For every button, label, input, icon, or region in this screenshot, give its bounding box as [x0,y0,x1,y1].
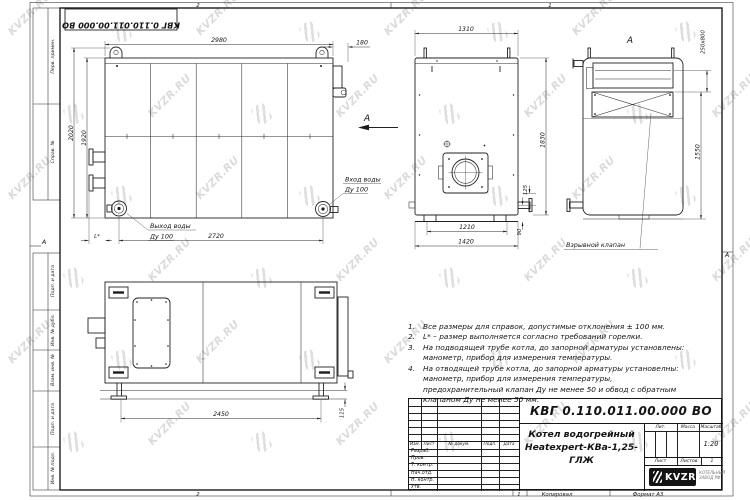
product-name-line1: Котел водогрейный [519,428,644,441]
zone-bottom-right: 1 [517,492,520,498]
dim-1920: 1920 [81,130,88,146]
dim-l-star: L* [94,234,100,240]
zone-bottom-left: 2 [196,492,200,498]
dim-2020: 2020 [68,125,75,141]
row-razrab: Разраб. [411,449,430,454]
view-a-mark: А [626,36,633,46]
explosion-valve-callout: Взрывной клапан [566,241,625,249]
note-2: 2. L* – размер выполняется согласно треб… [408,332,693,342]
dim-2450: 2450 [213,411,229,418]
fold-mark-left: А [41,238,46,246]
legs [111,383,329,399]
lit-label: Лит. [644,423,677,431]
title-block: Изм. Лист № докум. Подп. Дата Разраб. Пр… [408,398,722,490]
note-text: На подводящей трубе котла, до запорной а… [423,343,685,364]
row-utv: Утв. [411,485,421,490]
outlet-nozzle [107,201,127,216]
stamp-podp-data-1: Подп. и дата [50,265,56,297]
lifting-lug-right [316,47,328,58]
inlet-nozzle [316,202,339,217]
outlet-dn-label: Ду 100 [149,233,173,241]
stamp-vzam-inv: Взам. инв. № [50,354,56,386]
note-number: 2. [408,332,423,342]
sensor-boss [443,140,486,148]
drawing-sheet: KVZR.RUKVZR.RUKVZR.RUKVZR.RUKVZR.RUKVZR.… [0,0,750,500]
dim-115: 115 [340,407,346,418]
dim-1210: 1210 [459,224,475,231]
stamp-sprav-no: Справ. № [50,140,56,163]
kvzr-logo: KVZR [649,468,696,486]
doc-number: КВГ 0.110.011.00.000 ВО [519,399,723,423]
inlet-label: Вход воды [345,176,381,184]
zone-top-right: 1 [548,3,551,9]
dim-125: 125 [523,184,529,195]
burner-flange [439,153,493,193]
dim-1550: 1550 [695,144,702,160]
note-text: L* – размер выполняется согласно требова… [423,332,685,342]
dim-2980: 2980 [211,37,227,44]
col-docnum: № докум. [437,441,481,449]
view-plan: 2450 115 [88,282,353,423]
kvzr-logo-icon [653,471,662,483]
row-nachotd: Нач.отд. [411,471,432,476]
flue-stub [333,66,346,97]
dim-1830: 1830 [540,132,547,148]
flue-louver-box [587,63,674,89]
lifting-lug-left [110,47,122,58]
col-podp: Подп. [481,441,499,449]
product-name-line2: Heatexpert-КВа-1,25-ГЛЖ [519,441,644,467]
scale-value: 1:20 [699,431,723,457]
stamp-podp-data-2: Подп. и дата [50,403,56,435]
scale-label: Масштаб [699,423,723,431]
notes-list: 1. Все размеры для справок, допустимые о… [408,322,693,406]
format-label: Формат А3 [633,492,664,498]
dim-1420: 1420 [458,239,474,246]
note-number: 1. [408,322,423,332]
col-list: Лист [421,441,437,449]
dim-1310: 1310 [458,26,474,33]
mass-label: Масса [677,423,699,431]
note-text: Все размеры для справок, допустимые откл… [423,322,685,332]
explosion-valve [592,92,673,117]
outlet-label: Выход воды [150,222,191,230]
dim-2720: 2720 [208,233,224,240]
dim-250x800: 250x800 [701,30,707,54]
row-tkontr: Т. контр. [411,463,433,468]
stamp-inv-dubl: Инв. № дубл. [50,314,56,346]
stamp-perv-primen: Перв. примен. [50,38,56,73]
row-prov: Пров. [411,456,425,461]
view-a-arrow [358,125,369,131]
doc-number-rotated: КВГ 0.110.011.00.000 ВО [62,21,180,31]
sheets-label: Листов [677,457,701,465]
copied-label: Копировал [542,492,573,498]
view-side: 1310 1830 125 90 1210 1420 [409,26,549,250]
sheet-label: Лист [644,457,677,465]
sheets-value: 1 [701,457,723,465]
company-line2: ЗАВОД РФ [699,475,725,480]
note-1: 1. Все размеры для справок, допустимые о… [408,322,693,332]
col-data: Дата [499,441,519,449]
view-rear: А [564,30,711,250]
zone-top-left: 2 [196,3,200,9]
left-pipes [89,149,105,191]
top-hatch [133,298,170,368]
corner-lugs [109,287,334,378]
company-name: КОТЕЛЬНЫЙ ЗАВОД РФ [699,470,725,481]
view-front: 2980 180 2020 1920 2720 L* Выход воды Д [68,37,398,244]
col-izm: Изм. [409,441,421,449]
row-nkontr: Н. контр. [411,478,434,483]
stamp-inv-podl: Инв. № подл. [50,452,56,484]
inlet-dn-label: Ду 100 [344,186,368,194]
dim-180: 180 [356,40,368,47]
note-3: 3. На подводящей трубе котла, до запорно… [408,343,693,364]
kvzr-logo-text: KVZR [665,472,696,483]
view-a-letter: А [363,114,370,124]
note-number: 3. [408,343,423,364]
